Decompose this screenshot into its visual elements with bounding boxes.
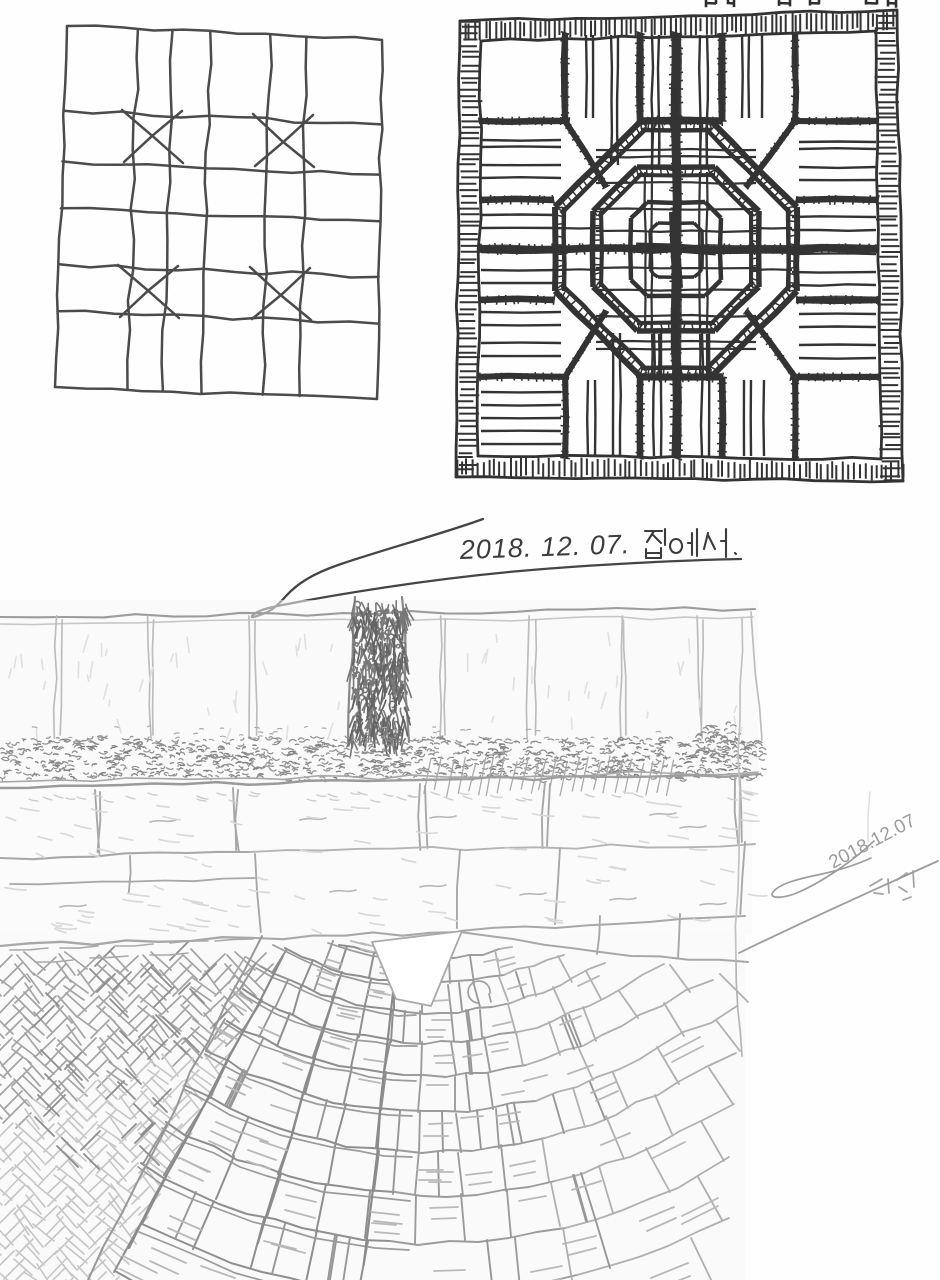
- svg-text:2018.12.07: 2018.12.07: [825, 810, 919, 873]
- svg-text:2018. 12. 07.: 2018. 12. 07.: [458, 529, 631, 565]
